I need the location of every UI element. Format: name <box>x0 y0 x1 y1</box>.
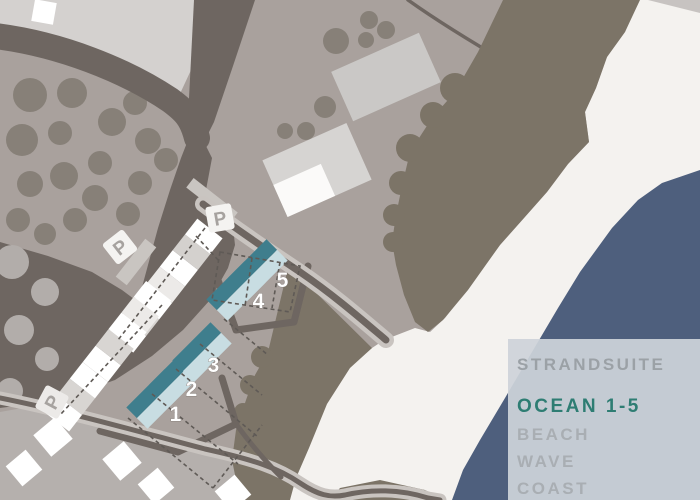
label-ocean-5: 5 <box>277 269 290 292</box>
label-ocean-2: 2 <box>186 378 199 401</box>
legend-item-coast: COAST <box>517 479 589 498</box>
label-ocean-4: 4 <box>253 290 266 313</box>
label-ocean-3: 3 <box>208 354 221 377</box>
legend-panel: STRANDSUITE OCEAN 1-5 BEACH WAVE COAST <box>508 339 700 500</box>
parking-sign-2: P <box>205 203 235 233</box>
legend-item-beach: BEACH <box>517 425 590 444</box>
legend-item-wave: WAVE <box>517 452 576 471</box>
map-canvas: P P P 1 2 3 4 5 STRANDSUITE OCEAN 1-5 BE… <box>0 0 700 500</box>
legend-item-ocean: OCEAN 1-5 <box>517 396 641 417</box>
label-ocean-1: 1 <box>170 403 183 426</box>
legend-item-strandsuite: STRANDSUITE <box>517 355 665 374</box>
resort-site-map: P P P 1 2 3 4 5 STRANDSUITE OCEAN 1-5 BE… <box>0 0 700 500</box>
